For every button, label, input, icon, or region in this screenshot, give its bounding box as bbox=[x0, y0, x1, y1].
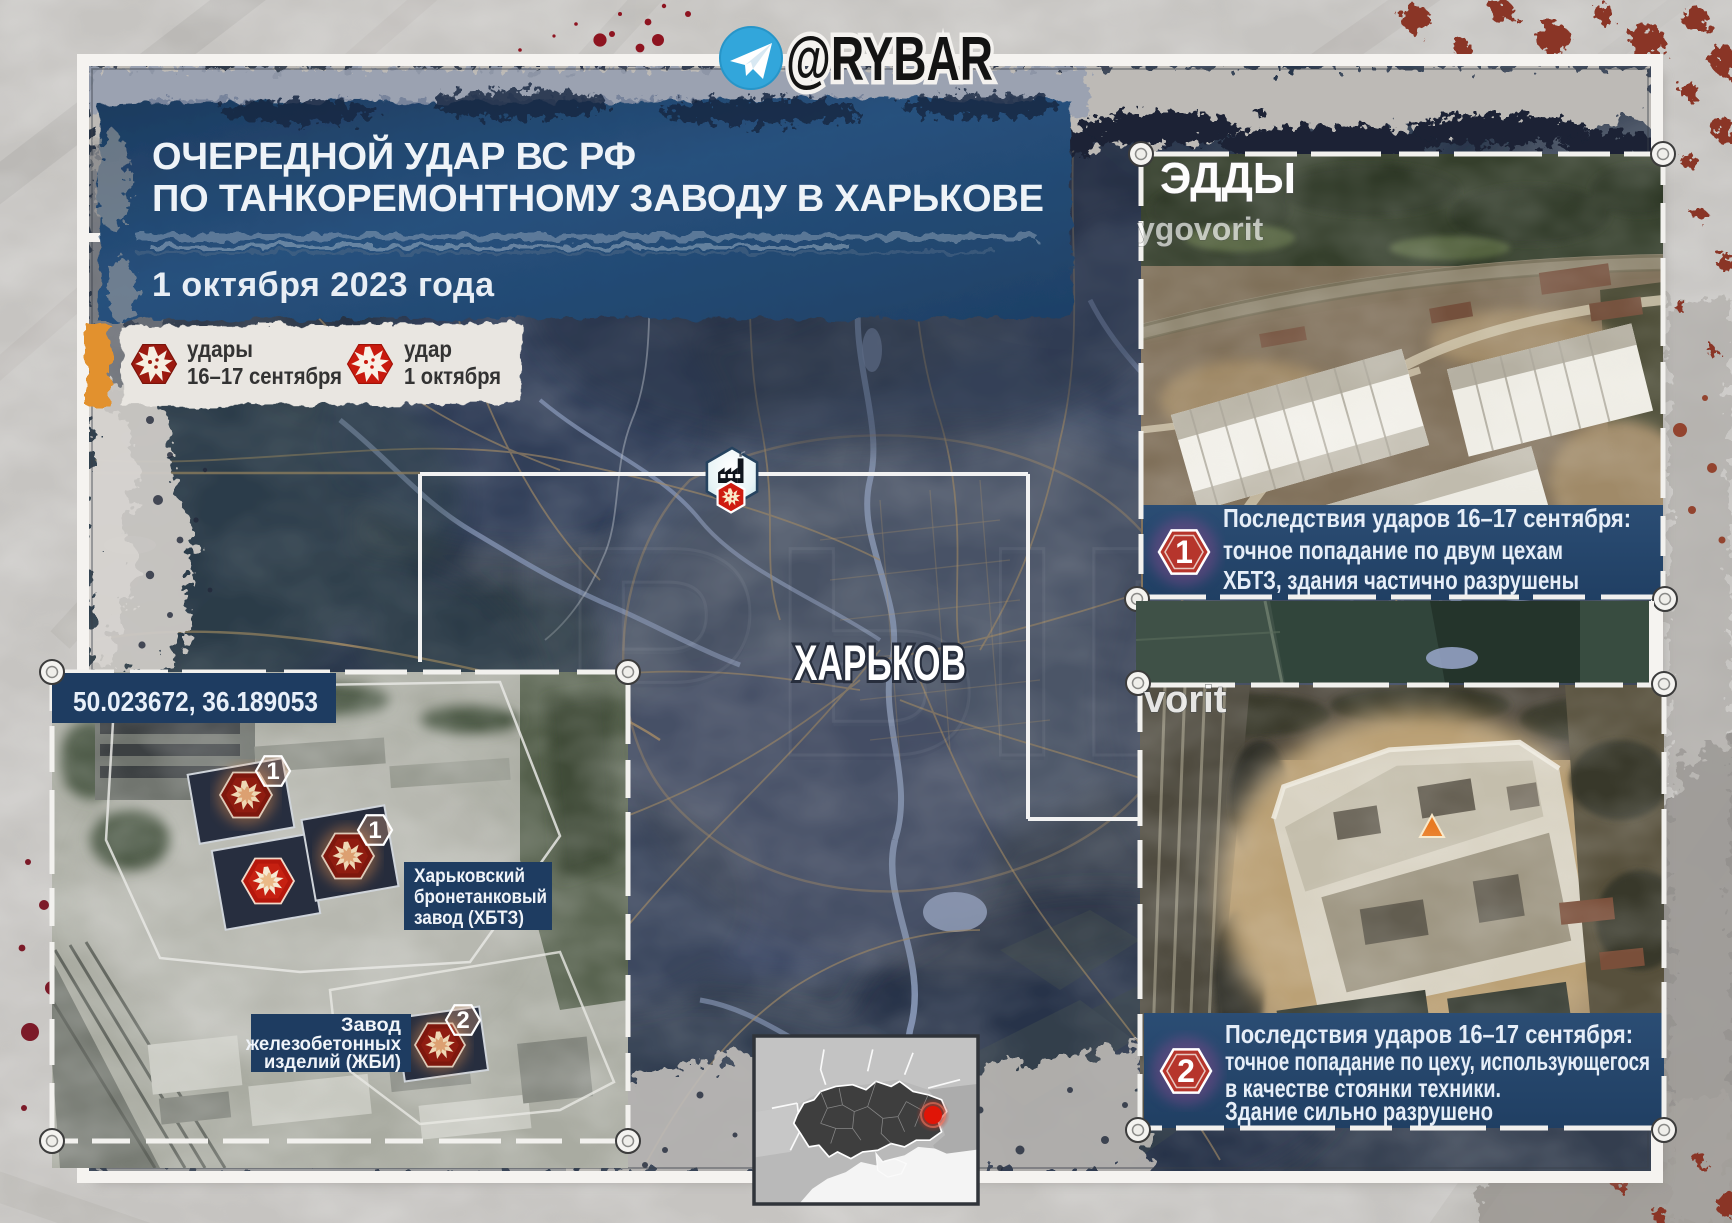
svg-text:удары: удары bbox=[187, 336, 253, 362]
svg-text:vorit: vorit bbox=[1144, 679, 1227, 721]
svg-text:точное попадание по цеху, испо: точное попадание по цеху, использующегос… bbox=[1225, 1046, 1650, 1076]
svg-text:50.023672, 36.189053: 50.023672, 36.189053 bbox=[73, 686, 318, 717]
svg-text:бронетанковый: бронетанковый bbox=[414, 887, 547, 908]
svg-text:ЭДДЫ: ЭДДЫ bbox=[1160, 154, 1296, 203]
svg-text:@RYBAR: @RYBAR bbox=[786, 25, 993, 94]
svg-text:ПО ТАНКОРЕМОНТНОМУ ЗАВОДУ В ХА: ПО ТАНКОРЕМОНТНОМУ ЗАВОДУ В ХАРЬКОВЕ bbox=[152, 178, 1044, 220]
svg-text:1 октября 2023 года: 1 октября 2023 года bbox=[152, 266, 495, 304]
svg-text:2: 2 bbox=[456, 1007, 469, 1034]
svg-text:1: 1 bbox=[1175, 534, 1193, 570]
svg-text:1 октября: 1 октября bbox=[404, 363, 501, 389]
svg-text:Последствия ударов 16–17 сентя: Последствия ударов 16–17 сентября: bbox=[1225, 1019, 1633, 1049]
svg-text:1: 1 bbox=[266, 758, 279, 785]
svg-text:ХБТЗ, здания частично разрушен: ХБТЗ, здания частично разрушены bbox=[1223, 565, 1579, 595]
svg-text:Последствия ударов 16–17 сентя: Последствия ударов 16–17 сентября: bbox=[1223, 503, 1631, 533]
svg-text:1: 1 bbox=[368, 817, 381, 844]
svg-text:2: 2 bbox=[1177, 1053, 1195, 1089]
svg-text:16–17 сентября: 16–17 сентября bbox=[187, 363, 342, 389]
svg-text:Завод: Завод bbox=[341, 1015, 401, 1036]
svg-text:изделий (ЖБИ): изделий (ЖБИ) bbox=[264, 1052, 401, 1073]
svg-text:ygovorit: ygovorit bbox=[1137, 211, 1264, 247]
svg-text:точное попадание по двум цехам: точное попадание по двум цехам bbox=[1223, 535, 1563, 565]
svg-text:удар: удар bbox=[404, 336, 452, 362]
svg-text:ОЧЕРЕДНОЙ УДАР ВС РФ: ОЧЕРЕДНОЙ УДАР ВС РФ bbox=[152, 133, 636, 178]
svg-text:ХАРЬКОВ: ХАРЬКОВ bbox=[794, 635, 966, 691]
svg-text:Харьковский: Харьковский bbox=[414, 866, 525, 887]
svg-text:Здание сильно разрушено: Здание сильно разрушено bbox=[1225, 1096, 1493, 1126]
svg-text:завод (ХБТЗ): завод (ХБТЗ) bbox=[414, 908, 524, 929]
